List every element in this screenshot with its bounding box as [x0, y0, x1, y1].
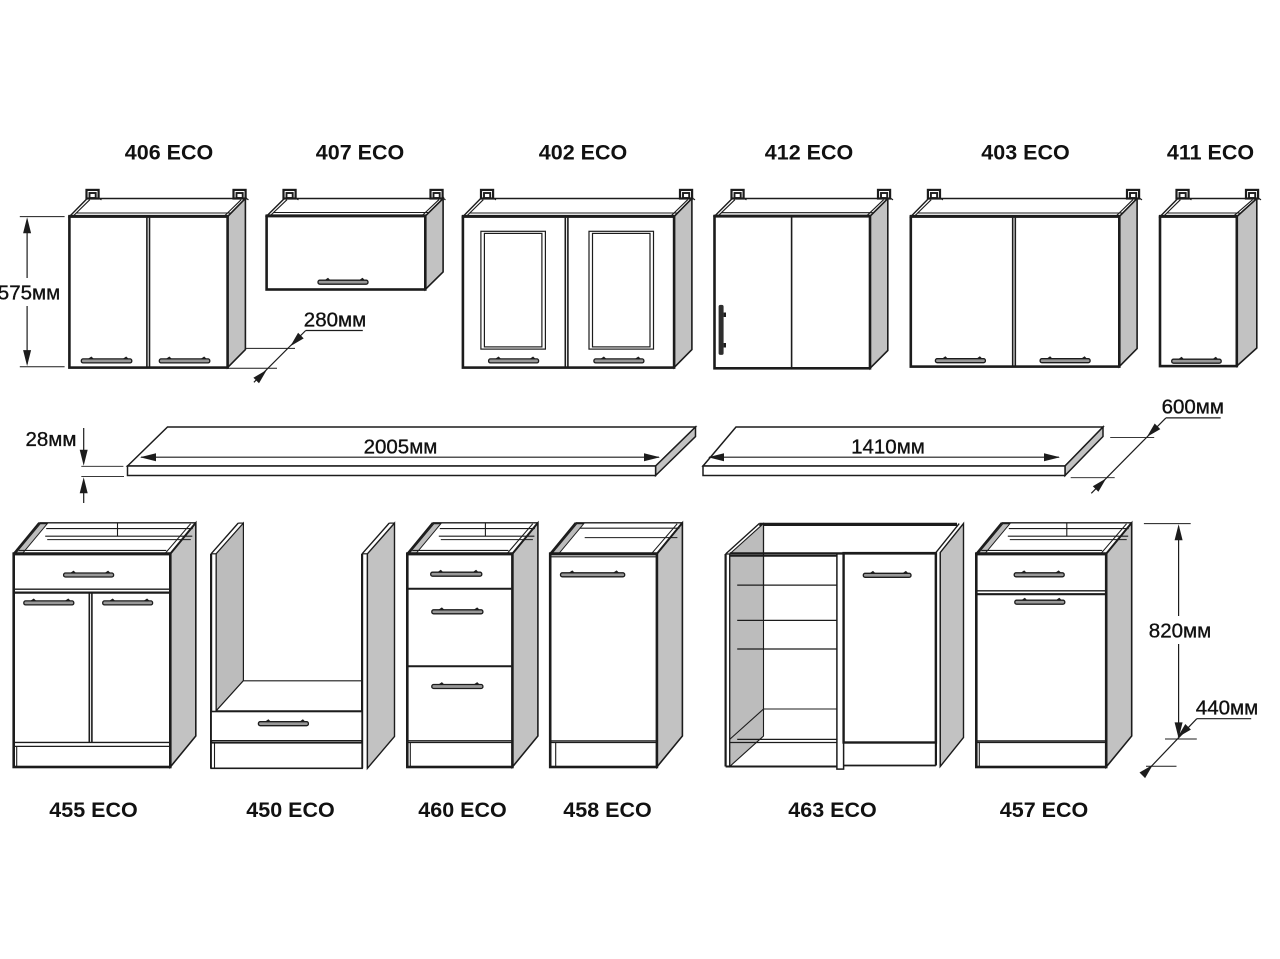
svg-text:403 ECO: 403 ECO — [981, 141, 1069, 165]
svg-text:406 ECO: 406 ECO — [125, 141, 213, 165]
svg-text:463 ECO: 463 ECO — [788, 798, 876, 822]
svg-text:458 ECO: 458 ECO — [563, 798, 651, 822]
svg-text:28мм: 28мм — [26, 428, 77, 451]
svg-text:1410мм: 1410мм — [851, 436, 925, 459]
svg-text:402 ECO: 402 ECO — [539, 141, 627, 165]
svg-text:412 ECO: 412 ECO — [765, 141, 853, 165]
svg-text:411 ECO: 411 ECO — [1167, 141, 1254, 165]
svg-text:600мм: 600мм — [1162, 395, 1224, 418]
svg-text:2005мм: 2005мм — [364, 436, 438, 459]
svg-text:460 ECO: 460 ECO — [418, 798, 506, 822]
svg-text:457 ECO: 457 ECO — [1000, 798, 1088, 822]
svg-text:407 ECO: 407 ECO — [316, 141, 404, 165]
svg-text:280мм: 280мм — [304, 309, 366, 332]
svg-text:440мм: 440мм — [1196, 697, 1258, 720]
svg-text:575мм: 575мм — [0, 282, 60, 305]
svg-text:455 ECO: 455 ECO — [49, 798, 137, 822]
svg-text:450 ECO: 450 ECO — [246, 798, 334, 822]
svg-text:820мм: 820мм — [1149, 620, 1211, 643]
